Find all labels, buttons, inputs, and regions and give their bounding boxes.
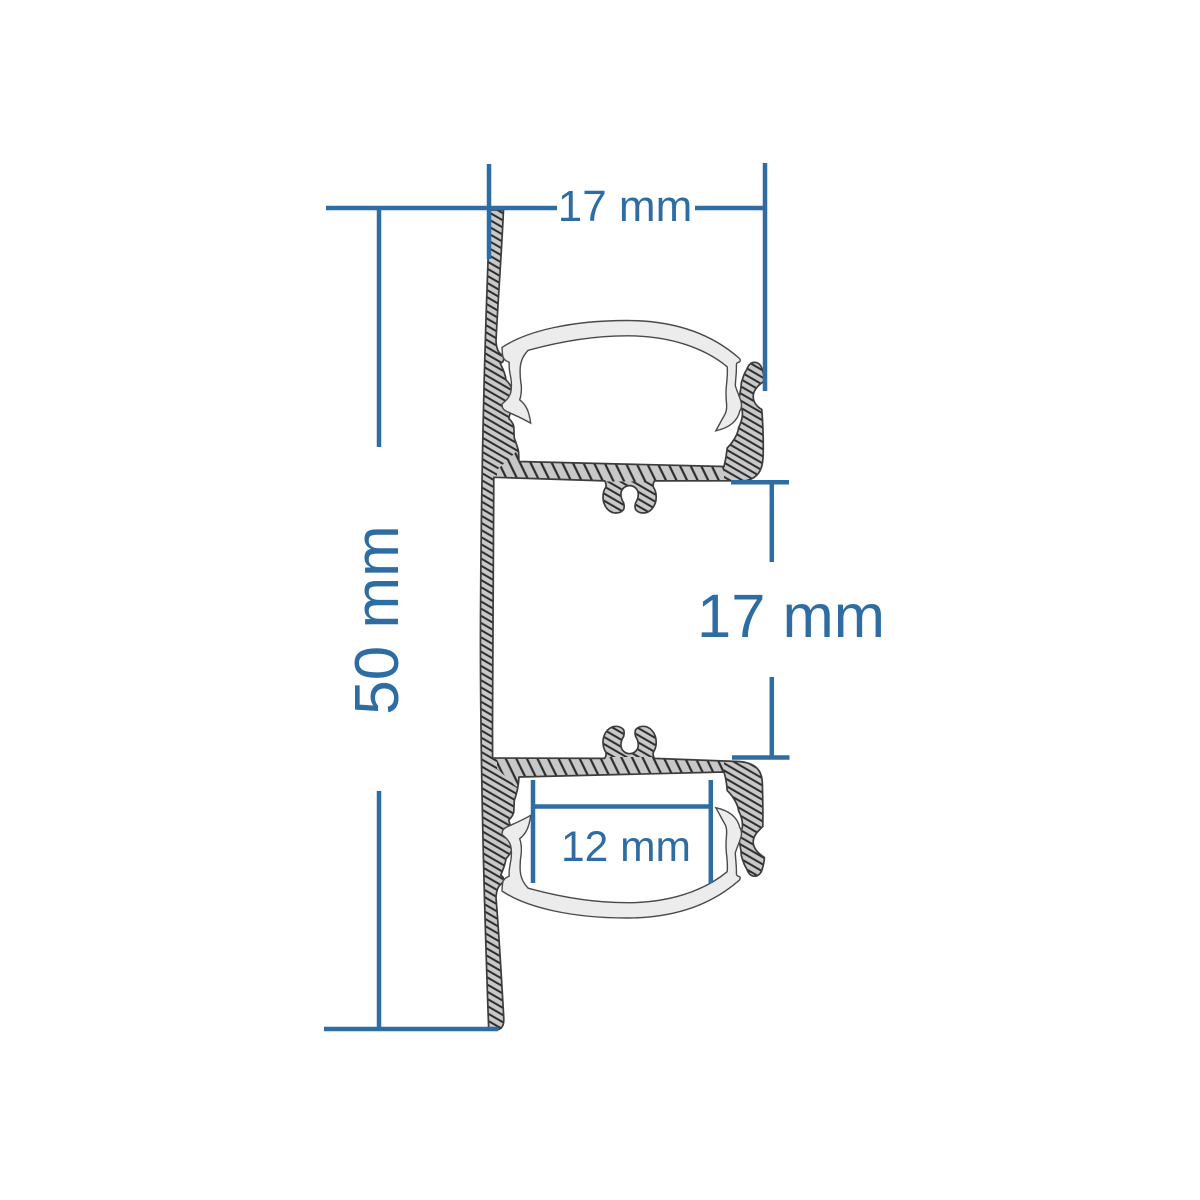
svg-text:50 mm: 50 mm bbox=[343, 525, 412, 714]
svg-text:17 mm: 17 mm bbox=[558, 182, 692, 231]
svg-text:12 mm: 12 mm bbox=[561, 824, 691, 871]
svg-text:17 mm: 17 mm bbox=[697, 582, 885, 651]
